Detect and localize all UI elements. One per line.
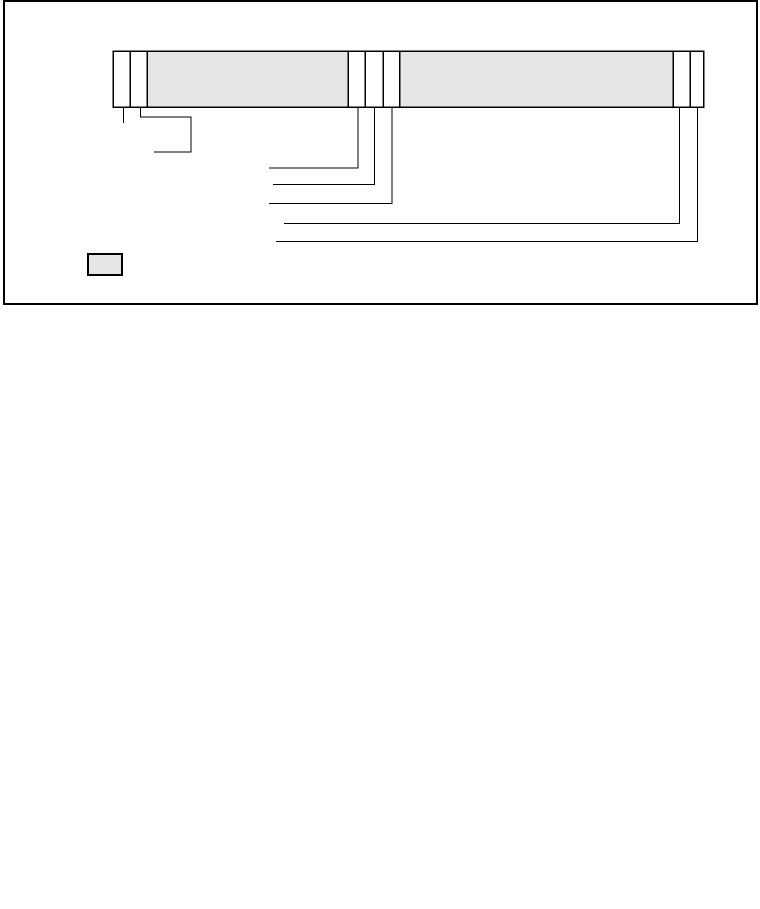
callout-line-5	[269, 107, 392, 204]
field-cell-1	[113, 51, 130, 107]
field-cell-9	[690, 51, 704, 107]
callout-line-4	[273, 107, 375, 185]
field-cell-3	[147, 51, 348, 107]
callout-line-3	[269, 107, 358, 168]
field-cell-4	[348, 51, 365, 107]
register-field-diagram	[0, 0, 760, 909]
callout-line-2	[141, 107, 192, 152]
field-cell-8	[673, 51, 690, 107]
callout-line-7	[276, 107, 698, 242]
figure-page	[0, 0, 760, 909]
legend-shaded-swatch	[88, 254, 122, 275]
field-cell-6	[383, 51, 400, 107]
field-cell-2	[130, 51, 147, 107]
field-cell-5	[365, 51, 383, 107]
callout-line-6	[284, 107, 680, 224]
field-cell-7	[400, 51, 674, 107]
